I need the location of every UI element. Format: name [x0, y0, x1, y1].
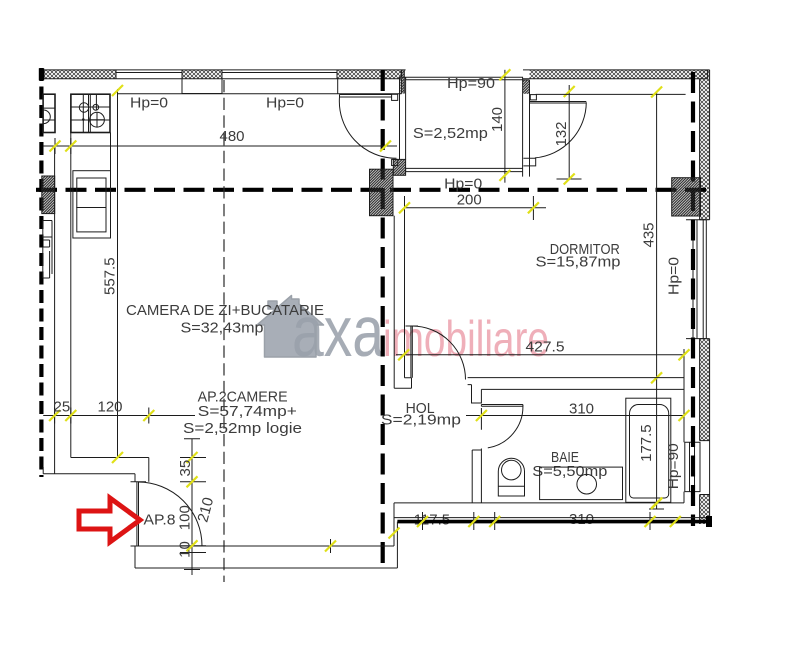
svg-text:177.5: 177.5 [638, 424, 655, 462]
svg-text:Hp=0: Hp=0 [130, 95, 168, 112]
svg-text:Hp=90: Hp=90 [447, 75, 495, 92]
svg-text:S=2,52mp logie: S=2,52mp logie [183, 420, 302, 437]
svg-text:200: 200 [457, 192, 482, 209]
svg-text:S=5,50mp: S=5,50mp [532, 463, 607, 480]
svg-text:140: 140 [489, 107, 506, 132]
svg-text:AP.8: AP.8 [144, 512, 176, 529]
svg-text:Hp=0: Hp=0 [444, 176, 482, 193]
svg-text:CAMERA DE ZI+BUCATARIE: CAMERA DE ZI+BUCATARIE [126, 302, 324, 319]
svg-text:Hp=0: Hp=0 [266, 95, 304, 112]
svg-text:Hp=90: Hp=90 [665, 443, 682, 489]
svg-text:35: 35 [177, 460, 194, 477]
svg-text:10: 10 [177, 541, 194, 558]
svg-text:132: 132 [553, 121, 570, 146]
svg-text:imobiliare: imobiliare [383, 311, 549, 367]
svg-text:310: 310 [569, 511, 594, 528]
svg-text:S=57,74mp+: S=57,74mp+ [198, 403, 297, 420]
svg-text:100: 100 [177, 505, 194, 530]
svg-text:S=15,87mp: S=15,87mp [536, 254, 621, 271]
svg-text:S=2,52mp: S=2,52mp [413, 125, 488, 142]
svg-text:25: 25 [54, 399, 71, 416]
svg-text:Hp=0: Hp=0 [666, 257, 683, 295]
svg-text:120: 120 [98, 399, 123, 416]
svg-text:427.5: 427.5 [526, 339, 565, 356]
svg-text:310: 310 [569, 401, 594, 418]
svg-text:557.5: 557.5 [102, 257, 119, 295]
svg-text:435: 435 [641, 222, 658, 247]
svg-text:S=32,43mp: S=32,43mp [181, 320, 264, 337]
svg-text:S=2,19mp: S=2,19mp [381, 412, 461, 429]
svg-text:480: 480 [220, 128, 245, 145]
